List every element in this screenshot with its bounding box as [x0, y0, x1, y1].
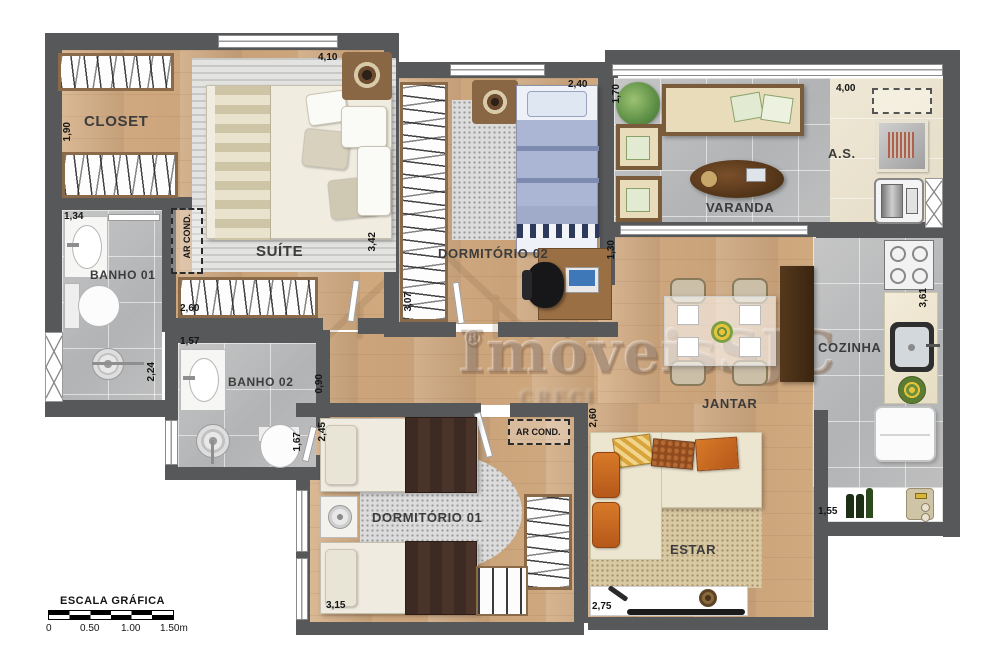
- wall: [814, 410, 828, 630]
- floor-plan: ImóveisSJC® CRECI: [0, 0, 1000, 668]
- door-banho01: [108, 214, 160, 221]
- wall: [574, 403, 588, 623]
- wall: [386, 322, 456, 337]
- dim-estar-left: 2,60: [588, 408, 599, 427]
- nightstand: [320, 496, 358, 538]
- dim-closet-left: 1,90: [62, 122, 73, 141]
- wall: [818, 522, 958, 536]
- shower-rail: [92, 362, 144, 365]
- burner-icon: [890, 246, 906, 262]
- book-icon: [746, 168, 766, 182]
- burner-icon: [912, 268, 928, 284]
- wall: [296, 622, 584, 635]
- dim-hall-left: 0,90: [314, 374, 325, 393]
- dorm01-bed: [320, 418, 478, 492]
- pillow: [325, 549, 357, 607]
- drain-icon: [908, 344, 915, 351]
- room-label-banho02: BANHO 02: [228, 375, 293, 389]
- ar-cond-label: AR COND.: [182, 214, 192, 259]
- dim-suite-right: 3,42: [367, 232, 378, 251]
- appliance-knob: [921, 503, 930, 512]
- stove-icon: [884, 240, 934, 290]
- rust-pillow: [651, 438, 695, 470]
- dim-dorm01-bottom: 3,15: [326, 600, 345, 611]
- tray-icon: [700, 170, 718, 188]
- banho02-counter: [180, 349, 226, 411]
- place-setting: [677, 305, 699, 325]
- wall: [165, 467, 330, 480]
- wall: [296, 403, 481, 417]
- dorm02-foot-stripe: [517, 224, 599, 238]
- place-setting: [739, 337, 761, 357]
- window: [218, 35, 338, 48]
- scale-bar: [48, 610, 174, 620]
- ar-cond-box-estar: AR COND.: [508, 419, 570, 445]
- scale-tick-0: 0: [46, 623, 52, 634]
- ar-cond-box-suite: AR COND.: [171, 208, 203, 274]
- dim-banho02-right: 1,67: [292, 432, 303, 451]
- registered-mark: ®: [463, 326, 486, 352]
- scale-bar-row: [49, 615, 173, 619]
- bottle-icon: [866, 488, 873, 518]
- scale-tick-050: 0.50: [80, 623, 99, 634]
- dim-suite-top: 4,10: [318, 52, 337, 63]
- as-cabinet-dashed: [872, 88, 932, 114]
- dim-suite-wardrobe: 2,60: [180, 303, 199, 314]
- washer-door: [906, 188, 918, 214]
- dim-banho01-top: 1,34: [64, 211, 83, 222]
- wall: [45, 400, 177, 417]
- ar-cond-label: AR COND.: [516, 427, 561, 437]
- burner-icon: [912, 246, 928, 262]
- dim-banho01-right: 2,24: [146, 362, 157, 381]
- place-setting: [677, 337, 699, 357]
- suite-bed-blanket: [215, 86, 271, 240]
- flowers-icon: [711, 321, 733, 343]
- dim-jantar-left: 1,30: [606, 240, 617, 259]
- varanda-chair: [616, 176, 662, 222]
- leaf-pillow: [626, 188, 650, 212]
- scale-tick-150: 1.50m: [160, 623, 188, 634]
- pendant-light-icon: [348, 56, 386, 94]
- room-label-banho01: BANHO 01: [90, 268, 155, 282]
- fridge-icon: [874, 406, 936, 462]
- bottle-icon: [856, 494, 864, 518]
- wardrobe: [58, 53, 174, 91]
- dorm02-bed: [516, 85, 598, 253]
- dim-dorm01-left: 2,45: [317, 422, 328, 441]
- dim-cozinha-bottom: 1,55: [818, 506, 837, 517]
- room-label-dorm01: DORMITÓRIO 01: [372, 510, 482, 525]
- room-label-dorm02: DORMITÓRIO 02: [438, 246, 548, 261]
- wall: [358, 318, 386, 334]
- pendant-light-icon: [477, 84, 513, 120]
- wardrobe: [476, 566, 528, 616]
- fridge-divider: [880, 434, 930, 436]
- dorm02-pillow: [527, 91, 587, 117]
- window: [296, 490, 308, 552]
- orange-pillow: [592, 452, 620, 498]
- laundry-tank-grate: [888, 132, 914, 158]
- varanda-chair: [616, 124, 662, 170]
- remote-icon: [608, 585, 629, 602]
- dim-as-top: 4,00: [836, 83, 855, 94]
- room-label-closet: CLOSET: [84, 113, 148, 130]
- suite-bed: [206, 85, 392, 239]
- balcony-railing: [612, 64, 943, 76]
- kitchen-sink-icon: [890, 322, 934, 372]
- shower-rail: [211, 440, 214, 464]
- dorm02-blanket-fold: [517, 178, 599, 183]
- tv-icon: [627, 609, 745, 615]
- laptop-screen: [569, 270, 595, 286]
- leaf-pillow: [760, 94, 793, 124]
- coffee-table-icon: [690, 160, 784, 198]
- faucet-icon: [67, 243, 79, 247]
- sliding-door: [620, 225, 808, 235]
- tv-console: [590, 586, 748, 616]
- washer-drum: [881, 184, 903, 218]
- dorm01-blanket: [405, 417, 477, 493]
- wall: [943, 50, 960, 537]
- pillow: [357, 146, 391, 216]
- wardrobe: [62, 152, 178, 198]
- leaf-pillow: [730, 92, 764, 123]
- jantar-cabinet: [780, 266, 814, 382]
- dim-estar-bottom: 2,75: [592, 601, 611, 612]
- burner-icon: [890, 268, 906, 284]
- wall: [178, 330, 330, 343]
- room-label-varanda: VARANDA: [706, 200, 774, 215]
- dim-cozinha-right: 3,61: [918, 288, 929, 307]
- dim-dorm02-top: 2,40: [568, 79, 587, 90]
- dorm01-blanket: [405, 541, 477, 615]
- place-setting: [739, 305, 761, 325]
- faucet-icon: [183, 376, 195, 380]
- appliance-knob: [921, 513, 930, 522]
- room-label-cozinha: COZINHA: [818, 340, 881, 355]
- appliance-icon: [906, 488, 934, 520]
- shaft-x-icon: [925, 178, 943, 228]
- dorm02-blanket-fold: [517, 146, 599, 151]
- pillow: [325, 425, 357, 485]
- dim-dorm02-left: 3,07: [403, 292, 414, 311]
- window: [165, 420, 178, 465]
- orange-pillow: [695, 437, 739, 472]
- wardrobe: [524, 494, 572, 590]
- dining-table: [664, 296, 776, 366]
- washer-icon: [874, 178, 924, 224]
- lamp-icon: [328, 505, 352, 529]
- plant-icon: [616, 82, 660, 126]
- shaft-x-icon: [45, 332, 63, 402]
- dim-banho02-top: 1,57: [180, 336, 199, 347]
- appliance-knob: [915, 493, 927, 499]
- window: [296, 558, 308, 620]
- fruit-bowl-icon: [898, 376, 926, 404]
- office-chair-back: [522, 270, 532, 300]
- window: [450, 64, 545, 76]
- faucet-icon: [926, 344, 940, 347]
- varanda-sofa: [662, 84, 804, 136]
- room-label-suite: SUÍTE: [256, 243, 303, 260]
- room-label-jantar: JANTAR: [702, 396, 757, 411]
- sink-icon: [72, 225, 102, 269]
- wall: [588, 617, 828, 630]
- orange-pillow: [592, 502, 620, 548]
- scale-title: ESCALA GRÁFICA: [60, 595, 165, 607]
- wall: [510, 403, 580, 417]
- wardrobe: [400, 82, 448, 322]
- room-label-estar: ESTAR: [670, 542, 716, 557]
- toilet-icon: [78, 285, 120, 327]
- scale-tick-100: 1.00: [121, 623, 140, 634]
- bottle-icon: [846, 494, 854, 518]
- decor-bowl-icon: [699, 589, 717, 607]
- wall: [498, 322, 618, 337]
- pillow: [341, 106, 387, 148]
- sink-icon: [189, 358, 219, 402]
- leaf-pillow: [626, 136, 650, 160]
- dim-varanda-left: 1,70: [611, 84, 622, 103]
- room-label-as: A.S.: [828, 146, 856, 161]
